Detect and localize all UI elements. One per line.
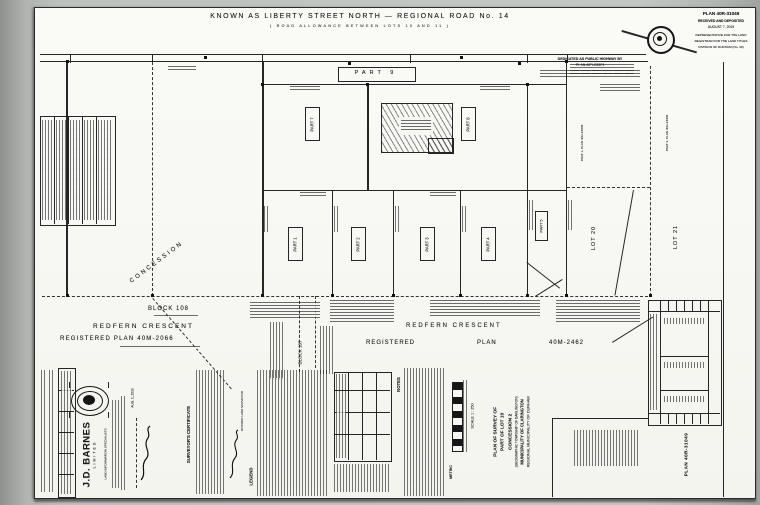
- illegible-text: [250, 302, 320, 318]
- east-dashed-line: [567, 187, 650, 188]
- stamp-date: AUGUST 7, 2019: [688, 25, 754, 30]
- table-rule: [68, 116, 69, 224]
- logo-tick: [69, 412, 70, 418]
- stamp-registrar: REGISTRAR FOR THE LAND TITLES: [688, 39, 754, 44]
- lot-line: [332, 190, 333, 296]
- title-line-6: REGIONAL MUNICIPALITY OF DURHAM: [526, 396, 532, 467]
- stamp-received: RECEIVED AND DEPOSITED: [688, 19, 754, 24]
- monument-marker: [66, 60, 69, 63]
- illegible-text: [121, 396, 127, 490]
- table-rule: [684, 413, 685, 424]
- firm-suffix-text: LIMITED: [93, 421, 97, 487]
- illegible-text: [664, 362, 706, 368]
- part-8-text: PART 8: [466, 117, 471, 131]
- mid-lot-line: [262, 190, 567, 191]
- ref-plan-outer-text: PART 2, PLAN 40R-23308: [665, 115, 669, 151]
- metric-heading-text: METRIC: [449, 465, 453, 479]
- dimension-text: [462, 206, 467, 232]
- block-west-line: [262, 62, 264, 296]
- table-rule: [700, 413, 701, 424]
- plan-number-east: 40M-2462: [549, 340, 584, 347]
- plan-number-vertical: PLAN 40R-31049: [678, 426, 694, 482]
- signature-rule: [136, 418, 137, 488]
- table-rule: [54, 116, 55, 224]
- plan-title: PLAN OF SURVEY OF PART OF LOT 10 CONCESS…: [480, 368, 544, 496]
- table-rule: [660, 356, 708, 357]
- jd-barnes-logo-core: [83, 395, 95, 405]
- monument-marker: [366, 83, 369, 86]
- logo-tick: [69, 382, 70, 388]
- table-rule: [660, 300, 661, 424]
- lot-21-text: LOT 21: [673, 225, 679, 249]
- illegible-text: [70, 120, 80, 220]
- part-9-label: PART 9: [338, 67, 414, 80]
- registered-word-east: REGISTERED: [366, 340, 415, 347]
- monument-marker: [66, 294, 69, 297]
- monument-marker: [460, 56, 463, 59]
- title-line-4: (GEOGRAPHIC TOWNSHIP OF DARLINGTON): [514, 396, 519, 467]
- illegible-text: [570, 64, 634, 76]
- lot-21-label: LOT 21: [668, 214, 684, 260]
- table-rule: [348, 372, 349, 460]
- monument-marker: [261, 83, 264, 86]
- table-rule: [82, 116, 83, 224]
- table-rule: [376, 372, 377, 460]
- part-7-label: PART 7: [305, 107, 320, 141]
- title-line-2: PART OF LOT 10: [500, 396, 507, 467]
- stamp-plan-number: PLAN 40R-31049: [688, 11, 754, 17]
- stamp-representative: REPRESENTATIVE FOR THE LAND: [688, 33, 754, 38]
- street-line-north: [40, 54, 646, 55]
- survey-tick: [70, 54, 71, 63]
- monument-marker: [151, 294, 154, 297]
- dimension-text: [168, 66, 196, 70]
- block-108-label: BLOCK 108: [148, 306, 189, 313]
- monument-marker: [526, 83, 529, 86]
- part-2-text: PART 2: [356, 237, 361, 251]
- dimension-text: [334, 206, 339, 232]
- ref-plan-inner: PART 1, PLAN 40R-23308: [577, 115, 587, 171]
- titleblock-rule: [552, 418, 648, 419]
- south-boundary-dashed: [42, 296, 648, 297]
- illegible-text: [320, 326, 334, 374]
- monument-marker: [392, 294, 395, 297]
- ols-label-text: ONTARIO LAND SURVEYOR: [240, 391, 244, 431]
- metric-heading: METRIC: [447, 454, 455, 490]
- scale-label-text: SCALE 1 : 250: [471, 403, 475, 428]
- dimension-text: [395, 206, 400, 232]
- lot-20-text: LOT 20: [591, 226, 597, 250]
- right-margin-rule: [723, 62, 724, 497]
- lot-line: [460, 190, 461, 296]
- logo-tick: [108, 382, 109, 388]
- table-rule: [668, 413, 669, 424]
- illegible-text: [664, 318, 706, 324]
- monument-marker: [204, 56, 207, 59]
- illegible-text: [556, 300, 640, 322]
- monument-marker: [565, 294, 568, 297]
- plan-word-east: PLAN: [477, 340, 497, 347]
- north-arrow-center: [657, 36, 662, 41]
- monument-marker: [459, 294, 462, 297]
- table-rule: [692, 300, 693, 311]
- illegible-text: [600, 84, 640, 92]
- part-5-text: PART 5: [540, 220, 544, 233]
- illegible-text: [257, 370, 329, 496]
- monument-marker: [518, 62, 521, 65]
- table-rule: [676, 300, 677, 311]
- surveyor-signature: [138, 424, 154, 484]
- part-2-label: PART 2: [351, 227, 366, 261]
- scale-bar: [452, 382, 463, 452]
- lot-boundary-dashed: [650, 66, 651, 296]
- title-line-5: MUNICIPALITY OF CLARINGTON: [520, 396, 527, 467]
- porch: [428, 138, 454, 154]
- plan-number-text: PLAN 40R-31049: [684, 432, 689, 476]
- table-rule: [96, 116, 97, 224]
- ref-plan-outer: PART 2, PLAN 40R-23308: [662, 96, 672, 170]
- illegible-text: [401, 120, 431, 132]
- title-line-3: CONCESSION 2: [507, 396, 514, 467]
- monument-marker: [526, 294, 529, 297]
- redfern-crescent-west: REDFERN CRESCENT: [93, 323, 194, 330]
- monument-marker: [348, 62, 351, 65]
- illegible-text: [650, 314, 658, 410]
- plan-date-text: AUG. 1, 2019: [131, 388, 135, 407]
- road-title: KNOWN AS LIBERTY STREET NORTH — REGIONAL…: [165, 12, 555, 22]
- illegible-text: [56, 120, 66, 220]
- monument-marker: [565, 60, 568, 63]
- illegible-text: [42, 120, 52, 220]
- table-rule: [676, 413, 677, 424]
- illegible-text: [404, 368, 446, 496]
- part-7-text: PART 7: [310, 117, 315, 131]
- notes-heading: NOTES: [394, 370, 403, 398]
- legend-heading-text: LEGEND: [249, 467, 254, 485]
- survey-plan-sheet: KNOWN AS LIBERTY STREET NORTH — REGIONAL…: [0, 0, 760, 505]
- illegible-text: [112, 400, 119, 488]
- illegible-text: [154, 315, 198, 318]
- part-5-label: PART 5: [535, 211, 548, 241]
- legend-heading: LEGEND: [246, 460, 256, 492]
- dimension-text: [568, 200, 573, 230]
- monument-marker: [331, 294, 334, 297]
- illegible-text: [49, 370, 55, 492]
- part-1-text: PART 1: [293, 237, 298, 251]
- part-3-label: PART 3: [420, 227, 435, 261]
- redfern-crescent-east: REDFERN CRESCENT: [406, 323, 502, 330]
- survey-tick: [410, 54, 411, 63]
- illegible-text: [430, 300, 540, 318]
- firm-name-text: J.D. BARNES: [82, 421, 93, 487]
- dimension-text: [290, 86, 320, 90]
- dimension-text: [529, 200, 534, 230]
- illegible-text: [61, 371, 72, 494]
- illegible-text: [98, 120, 112, 220]
- illegible-text: [84, 120, 94, 220]
- table-rule: [708, 300, 709, 424]
- ref-plan-inner-text: PART 1, PLAN 40R-23308: [580, 125, 584, 161]
- table-rule: [692, 413, 693, 424]
- part-3-text: PART 3: [425, 237, 430, 251]
- block-east-line: [566, 62, 567, 296]
- illegible-text: [664, 396, 706, 402]
- table-rule: [648, 311, 720, 312]
- scale-label: SCALE 1 : 250: [468, 388, 477, 444]
- firm-tagline-text: LAND INFORMATION SPECIALISTS: [104, 428, 108, 479]
- dimension-text: [480, 86, 510, 90]
- monument-marker: [261, 294, 264, 297]
- table-rule: [684, 300, 685, 311]
- lot-20-label: LOT 20: [586, 215, 602, 261]
- illegible-text: [196, 370, 226, 494]
- illegible-text: [336, 374, 346, 458]
- table-rule: [668, 300, 669, 311]
- illegible-text: [334, 464, 390, 492]
- table-rule: [362, 372, 363, 460]
- illegible-text: [41, 370, 47, 492]
- illegible-text: [330, 300, 394, 324]
- dimension-text: [430, 192, 456, 196]
- part-1-label: PART 1: [288, 227, 303, 261]
- monument-marker: [649, 294, 652, 297]
- lot-line: [367, 84, 369, 190]
- certificate-heading: SURVEYOR'S CERTIFICATE: [184, 382, 194, 486]
- registered-plan-west: REGISTERED PLAN 40M-2066: [60, 336, 174, 343]
- certificate-heading-text: SURVEYOR'S CERTIFICATE: [187, 405, 192, 462]
- firm-tagline: LAND INFORMATION SPECIALISTS: [102, 418, 110, 490]
- titleblock-rule: [552, 418, 553, 497]
- part9-strip-line: [262, 84, 567, 85]
- plan-date: AUG. 1, 2019: [128, 380, 137, 416]
- stamp-division: DIVISION OF DURHAM (No. 40): [688, 45, 754, 50]
- dedication-line-1: DEDICATED AS PUBLIC HIGHWAY BY: [532, 57, 648, 62]
- dimension-text: [300, 192, 326, 196]
- part-4-text: PART 4: [486, 237, 491, 251]
- lot-line: [393, 190, 394, 296]
- notes-heading-text: NOTES: [396, 377, 401, 392]
- illegible-text: [120, 346, 200, 349]
- dimension-text: [264, 206, 269, 232]
- illegible-text: [574, 430, 640, 466]
- ols-label: ONTARIO LAND SURVEYOR: [238, 376, 246, 446]
- survey-tick: [527, 54, 528, 63]
- part-4-label: PART 4: [481, 227, 496, 261]
- road-subtitle: ( ROAD ALLOWANCE BETWEEN LOTS 10 AND 11 …: [205, 23, 515, 29]
- part-8-label: PART 8: [461, 107, 476, 141]
- title-line-1: PLAN OF SURVEY OF: [492, 396, 499, 467]
- firm-name: J.D. BARNES LIMITED: [76, 416, 102, 492]
- table-rule: [660, 390, 708, 391]
- table-rule: [700, 300, 701, 311]
